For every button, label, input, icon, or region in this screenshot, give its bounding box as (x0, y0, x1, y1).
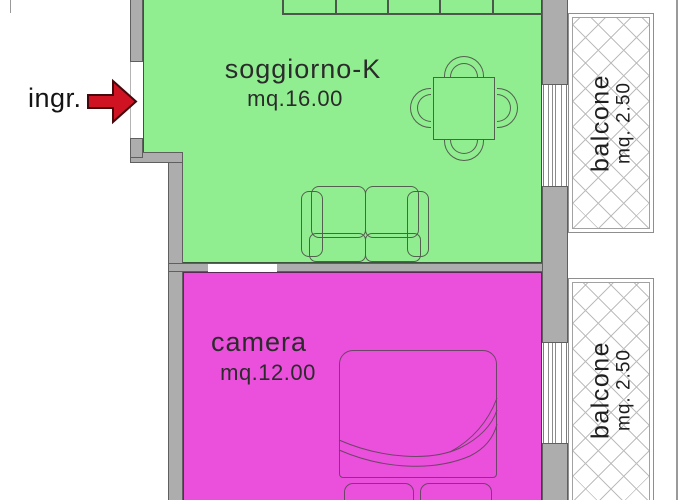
entrance-arrow-icon (85, 77, 141, 127)
kitchen-counter (282, 0, 542, 15)
balcony-name-label: balcone (588, 341, 614, 439)
outside-area-cover (118, 163, 168, 263)
window-pane-line (561, 343, 562, 443)
counter-divider (492, 0, 494, 13)
wall-left-jog-vertical (130, 138, 143, 158)
bed-pillow-left (344, 483, 414, 500)
site-boundary-line-right (676, 0, 678, 500)
window-pane-line (555, 85, 556, 186)
window-pane-line (548, 85, 549, 186)
entrance-label: ingr. (28, 83, 82, 114)
window-camera (543, 343, 567, 443)
site-boundary-line-topleft (10, 0, 11, 13)
balcony-name-label: balcone (588, 74, 614, 172)
area-label-soggiorno: mq.16.00 (155, 86, 435, 112)
window-pane-line (548, 343, 549, 443)
door-opening-camera (208, 264, 277, 272)
balcony-bottom-label: balcone mq. 2.50 (588, 341, 633, 439)
wall-left-top (130, 0, 143, 62)
window-pane-line (552, 343, 553, 443)
counter-divider (387, 0, 389, 13)
window-soggiorno (543, 85, 567, 186)
balcony-bottom: balcone mq. 2.50 (568, 278, 654, 500)
window-pane-line (552, 85, 553, 186)
counter-divider (439, 0, 441, 13)
sofa-seat-right (365, 233, 421, 262)
sofa-seat-left (309, 233, 366, 262)
window-pane-line (561, 85, 562, 186)
counter-divider (335, 0, 337, 13)
room-label-soggiorno: soggiorno-K (163, 54, 443, 85)
room-label-camera: camera (119, 327, 399, 358)
balcony-area-label: mq. 2.50 (614, 341, 634, 439)
dining-table (433, 77, 495, 140)
window-pane-line (555, 343, 556, 443)
bed-pillow-right (420, 483, 492, 500)
wall-right-top (542, 0, 568, 85)
area-label-camera: mq.12.00 (128, 360, 408, 386)
floor-plan: balcone mq. 2.50 balcone mq. 2.50 ingr. … (0, 0, 700, 500)
wall-right-middle (542, 186, 568, 343)
balcony-area-label: mq. 2.50 (614, 74, 634, 172)
wall-right-bottom (542, 443, 568, 500)
balcony-top-label: balcone mq. 2.50 (588, 74, 633, 172)
balcony-top: balcone mq. 2.50 (568, 13, 654, 233)
